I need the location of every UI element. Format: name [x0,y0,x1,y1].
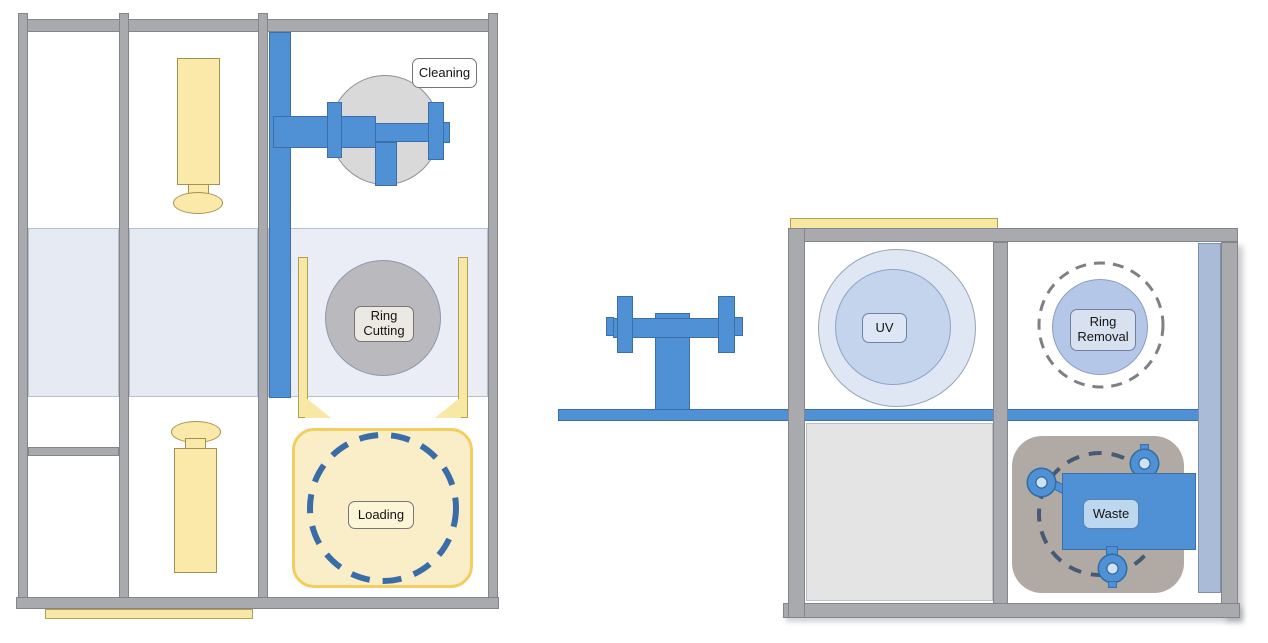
equipment-layout-diagram: Cleaning Ring Cutting Loading [0,0,1268,643]
gripper-left [1028,469,1055,496]
cleaning-label: Cleaning [412,58,477,88]
gripper-bottom-tab [1108,581,1117,588]
vertical-rail [269,32,291,398]
process-band-col2 [129,228,258,397]
right-frame-post-right [1221,242,1238,618]
right-bottom-frame-bar [783,603,1240,618]
cleaning-arm-tab-left [327,102,342,158]
loading-label-text: Loading [358,508,404,523]
ring-cutting-label-line1: Ring [371,309,398,324]
right-frame-post-mid [993,242,1008,618]
guide-rail-left [298,257,308,418]
frame-post-right [488,13,498,607]
process-band-col1 [28,228,119,397]
frame-post-3 [258,13,268,607]
lower-left-panel [806,423,993,601]
cleaning-arm-main [273,116,376,148]
right-top-frame-bar [788,228,1238,242]
guide-rail-right [458,257,468,418]
cleaning-label-text: Cleaning [419,66,470,81]
ring-removal-label: Ring Removal [1070,309,1136,351]
ring-removal-label-line2: Removal [1077,330,1128,345]
transfer-nub-left [606,317,614,336]
base-yellow-strip [45,609,253,619]
waste-label-text: Waste [1093,507,1129,522]
cleaning-arm-down-bar [375,142,397,186]
transfer-tab-left [617,296,633,353]
ring-removal-label-line1: Ring [1090,315,1117,330]
transfer-nub-right [734,317,743,336]
transfer-tab-right [718,296,735,353]
uv-label: UV [862,313,907,343]
right-frame-post-left [788,228,805,618]
cleaning-arm-end-nub [443,122,450,143]
loading-label: Loading [348,501,414,529]
frame-post-left [18,13,28,607]
frame-post-2 [119,13,129,607]
transfer-rail [558,409,1202,421]
upper-cylinder-body [177,58,220,185]
gripper-bottom [1099,555,1126,582]
shelf-bar [28,447,119,456]
waste-label: Waste [1083,499,1139,529]
ring-cutting-label: Ring Cutting [354,306,414,342]
right-slate-panel [1198,243,1221,593]
upper-cylinder-foot [173,192,223,214]
ring-cutting-label-line2: Cutting [363,324,404,339]
lower-cylinder-body [174,448,217,573]
bottom-frame-bar [16,597,499,609]
uv-label-text: UV [875,321,893,336]
guide-foot-left [305,397,331,418]
cleaning-arm-tab-right [428,102,444,160]
